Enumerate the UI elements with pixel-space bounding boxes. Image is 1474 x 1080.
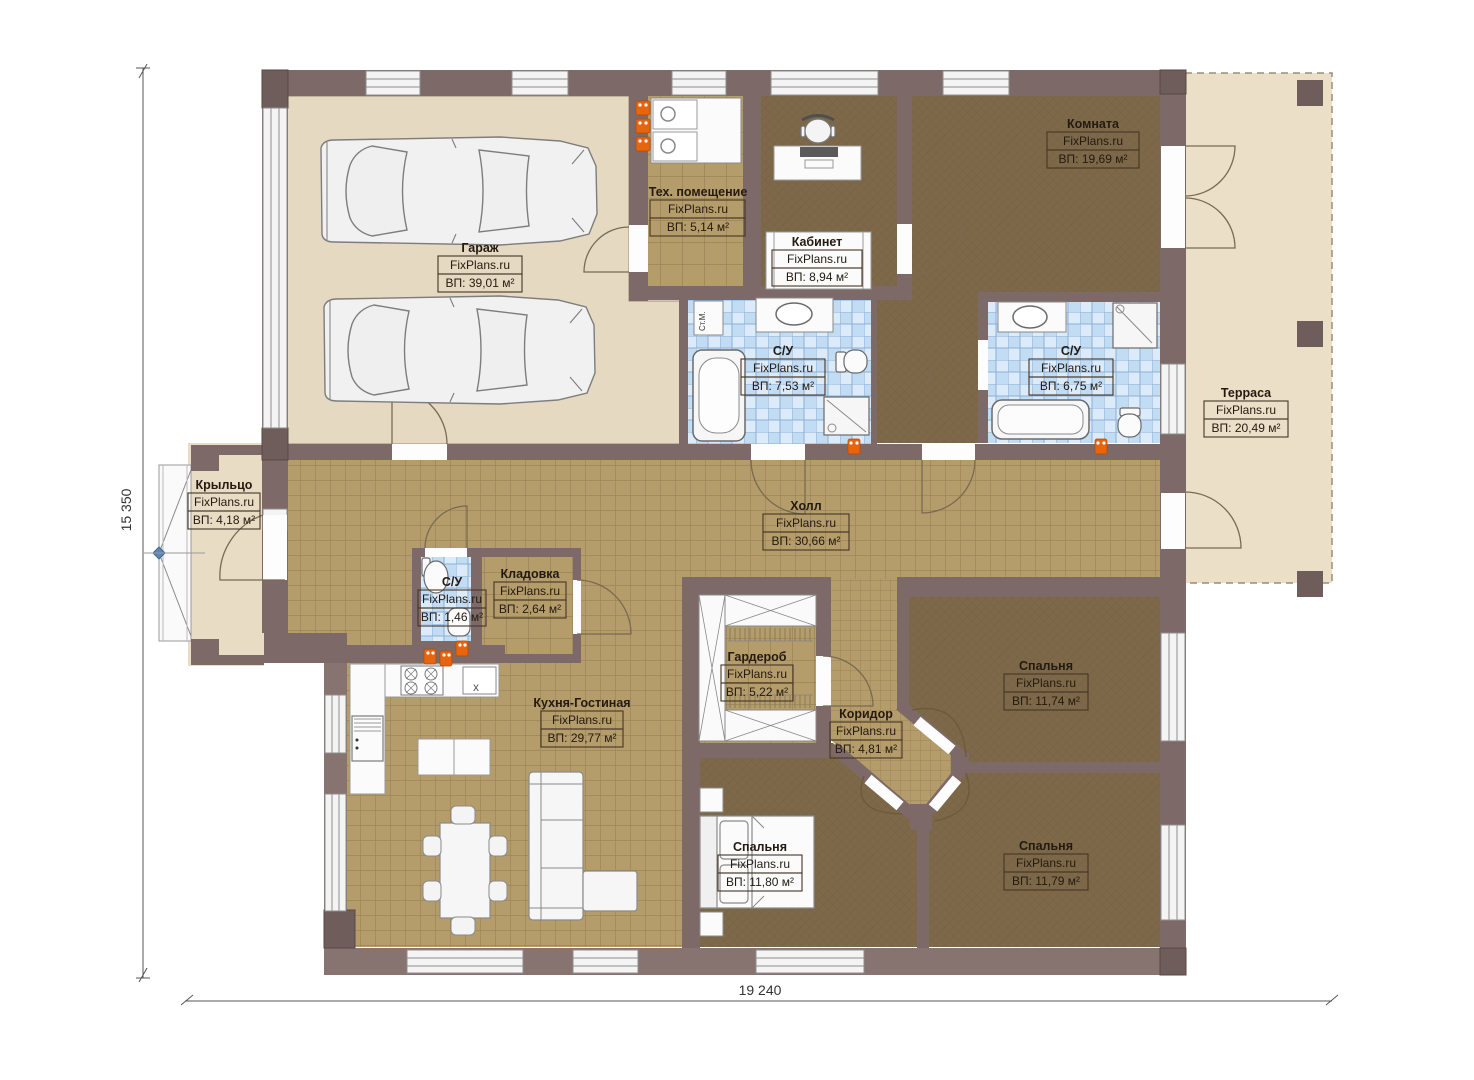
svg-text:FixPlans.ru: FixPlans.ru	[450, 258, 510, 272]
svg-text:С/У: С/У	[773, 344, 794, 358]
svg-text:FixPlans.ru: FixPlans.ru	[1041, 361, 1101, 375]
svg-text:FixPlans.ru: FixPlans.ru	[500, 584, 560, 598]
svg-text:ВП: 20,49 м²: ВП: 20,49 м²	[1212, 421, 1281, 435]
svg-text:Кухня-Гостиная: Кухня-Гостиная	[533, 696, 630, 710]
svg-text:С/У: С/У	[1061, 344, 1082, 358]
svg-text:Кладовка: Кладовка	[501, 567, 561, 581]
svg-text:ВП: 4,81 м²: ВП: 4,81 м²	[835, 742, 897, 756]
svg-text:ВП: 29,77 м²: ВП: 29,77 м²	[548, 731, 617, 745]
svg-text:Тех. помещение: Тех. помещение	[649, 185, 748, 199]
svg-text:ВП: 39,01 м²: ВП: 39,01 м²	[446, 276, 515, 290]
svg-text:Гараж: Гараж	[461, 241, 498, 255]
svg-text:Спальня: Спальня	[1019, 839, 1073, 853]
svg-text:ВП: 30,66 м²: ВП: 30,66 м²	[772, 534, 841, 548]
svg-text:15 350: 15 350	[118, 488, 134, 531]
svg-text:FixPlans.ru: FixPlans.ru	[836, 724, 896, 738]
svg-text:Гардероб: Гардероб	[727, 650, 786, 664]
svg-text:FixPlans.ru: FixPlans.ru	[1016, 856, 1076, 870]
svg-text:Спальня: Спальня	[733, 840, 787, 854]
svg-text:ВП: 11,79 м²: ВП: 11,79 м²	[1012, 874, 1080, 888]
svg-text:ВП: 11,80 м²: ВП: 11,80 м²	[726, 875, 794, 889]
svg-text:ВП: 11,74 м²: ВП: 11,74 м²	[1012, 694, 1080, 708]
svg-text:ВП: 6,75 м²: ВП: 6,75 м²	[1040, 379, 1102, 393]
svg-text:FixPlans.ru: FixPlans.ru	[787, 252, 847, 266]
svg-text:Кабинет: Кабинет	[792, 235, 843, 249]
svg-text:ВП: 4,18 м²: ВП: 4,18 м²	[193, 513, 255, 527]
svg-text:FixPlans.ru: FixPlans.ru	[1216, 403, 1276, 417]
svg-text:FixPlans.ru: FixPlans.ru	[194, 495, 254, 509]
svg-text:FixPlans.ru: FixPlans.ru	[668, 202, 728, 216]
svg-text:19 240: 19 240	[739, 982, 782, 998]
svg-text:FixPlans.ru: FixPlans.ru	[552, 713, 612, 727]
svg-text:FixPlans.ru: FixPlans.ru	[730, 857, 790, 871]
svg-text:ВП: 5,22 м²: ВП: 5,22 м²	[726, 685, 788, 699]
svg-text:FixPlans.ru: FixPlans.ru	[776, 516, 836, 530]
svg-text:С/У: С/У	[442, 575, 463, 589]
svg-text:Спальня: Спальня	[1019, 659, 1073, 673]
svg-text:ВП: 8,94 м²: ВП: 8,94 м²	[786, 270, 848, 284]
svg-text:FixPlans.ru: FixPlans.ru	[727, 667, 787, 681]
svg-text:ВП: 5,14 м²: ВП: 5,14 м²	[667, 220, 729, 234]
svg-text:x: x	[473, 680, 479, 694]
svg-text:Ст.М.: Ст.М.	[698, 311, 707, 331]
svg-text:FixPlans.ru: FixPlans.ru	[753, 361, 813, 375]
svg-text:Терраса: Терраса	[1221, 386, 1272, 400]
svg-text:ВП: 2,64 м²: ВП: 2,64 м²	[499, 602, 561, 616]
svg-text:FixPlans.ru: FixPlans.ru	[1063, 134, 1123, 148]
svg-text:FixPlans.ru: FixPlans.ru	[1016, 676, 1076, 690]
svg-text:Холл: Холл	[790, 499, 821, 513]
svg-text:Крыльцо: Крыльцо	[196, 478, 253, 492]
svg-text:ВП: 1,46 м²: ВП: 1,46 м²	[421, 610, 483, 624]
svg-text:ВП: 7,53 м²: ВП: 7,53 м²	[752, 379, 814, 393]
svg-text:ВП: 19,69 м²: ВП: 19,69 м²	[1059, 152, 1128, 166]
svg-text:Коридор: Коридор	[839, 707, 893, 721]
svg-text:Комната: Комната	[1067, 117, 1120, 131]
svg-text:FixPlans.ru: FixPlans.ru	[422, 592, 482, 606]
